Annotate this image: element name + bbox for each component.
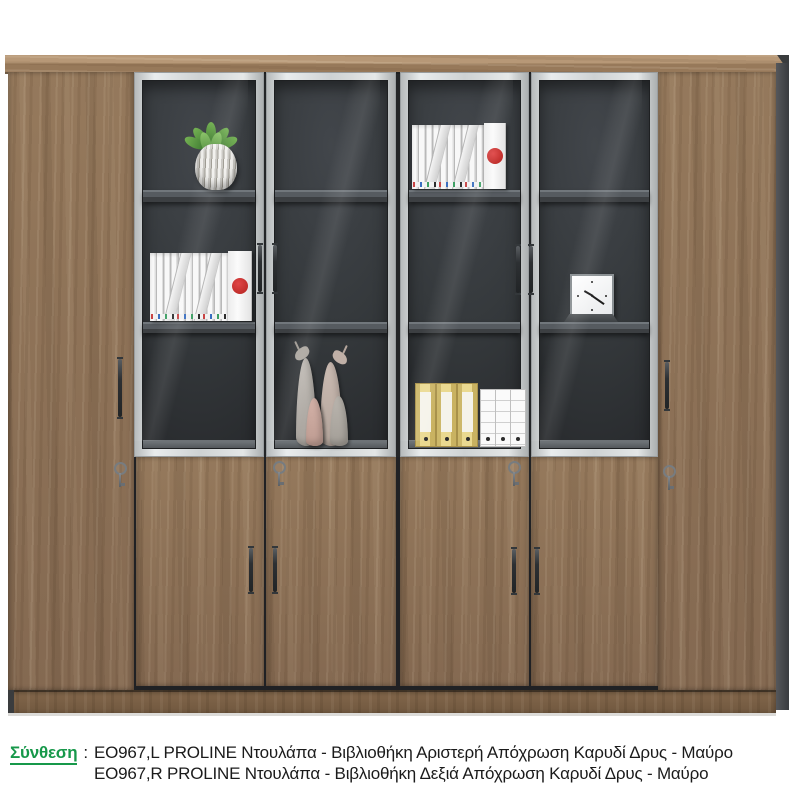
lever-file-yellow [436,383,457,447]
glass-door-1-handle [258,245,262,292]
lower-door-2-lock-key [272,461,284,493]
leaning-binder [424,125,451,189]
succulent-plant [190,120,242,190]
glass-display-section [134,72,658,457]
shelf-floor [540,440,649,448]
clock-minute-hand [592,295,604,304]
lower-door-1 [136,457,264,686]
shelf-floor [143,440,255,448]
right-door-lock-key [662,465,674,497]
left-tall-door [8,72,134,690]
left-door-handle [118,359,122,417]
binders-row [150,253,228,321]
caption-line-2: EO967,R PROLINE Ντουλάπα - Βιβλιοθήκη Δε… [94,763,733,784]
key-bit [121,483,125,486]
lever-file-white [495,389,511,447]
binders-row [412,125,484,189]
plant-pot [195,144,237,190]
glass-door-4-interior [539,80,650,449]
cabinet-side-panel [776,63,789,710]
shelf-board [540,190,649,202]
deer-figurines [294,344,350,446]
leaning-binder [164,253,192,321]
glass-door-2-handle [273,245,277,292]
lower-door-3-lock-key [507,461,519,493]
lever-file-white [480,389,496,447]
caption: Σύνθεση : EO967,L PROLINE Ντουλάπα - Βιβ… [10,742,794,784]
clock-stand [564,314,618,322]
right-door-handle [665,362,669,409]
binder-red-dot [484,123,506,189]
shelf-board [143,322,255,333]
figurine-small-gray [330,396,348,446]
lower-door-3-handle [512,549,516,593]
right-tall-door [658,72,776,690]
lower-door-2 [266,457,396,686]
binder-red-dot [228,251,252,321]
key-bit [670,486,674,489]
lever-file-white [510,389,526,447]
product-image-office-bookcase: Σύνθεση : EO967,L PROLINE Ντουλάπα - Βιβ… [0,0,800,800]
lower-door-2-handle [273,548,277,592]
lower-doors-section [134,457,658,690]
lower-door-4-handle [535,549,539,593]
glass-door-3-handle [516,246,520,293]
shelf-board [143,190,255,202]
key-bit [280,482,284,485]
figurine-head [292,345,311,362]
leaning-binder [194,253,222,321]
glass-door-4-handle [529,246,533,293]
caption-separator: : [83,742,88,763]
lever-file-yellow [457,383,478,447]
binder-color-labels [413,182,483,187]
key-bit [515,482,519,485]
lever-file-yellow [415,383,436,447]
floor-highlight [8,713,776,716]
shelf-board [275,322,387,333]
glass-door-4 [531,72,658,457]
left-door-lock-key [113,462,125,494]
binder-color-labels [151,314,227,319]
plinth-corner-shadow [8,690,14,713]
caption-lines: EO967,L PROLINE Ντουλάπα - Βιβλιοθήκη Αρ… [94,742,733,784]
lower-door-1-handle [249,548,253,592]
caption-line-1: EO967,L PROLINE Ντουλάπα - Βιβλιοθήκη Αρ… [94,742,733,763]
shelf-board [409,322,520,333]
shelf-board [275,190,387,202]
shelf-board [540,322,649,333]
desk-clock [570,274,614,318]
leaning-binder [452,125,479,189]
plinth-base [8,690,776,715]
figurine-ear [342,345,348,354]
lower-door-4 [531,457,658,686]
caption-label: Σύνθεση [10,742,77,765]
shelf-board [409,190,520,202]
